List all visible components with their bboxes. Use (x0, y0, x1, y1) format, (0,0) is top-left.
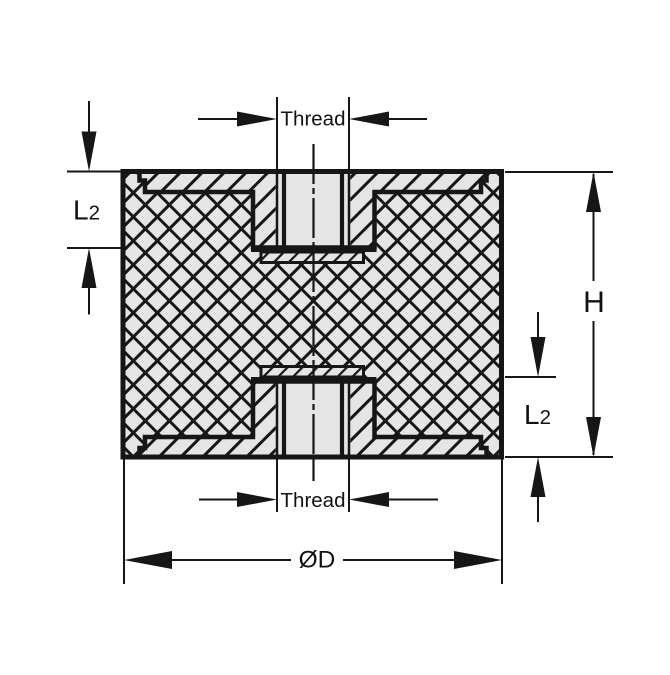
svg-text:ØD: ØD (299, 547, 336, 574)
svg-text:H: H (583, 286, 605, 319)
svg-text:Thread: Thread (281, 108, 346, 131)
svg-text:Thread: Thread (281, 489, 346, 512)
